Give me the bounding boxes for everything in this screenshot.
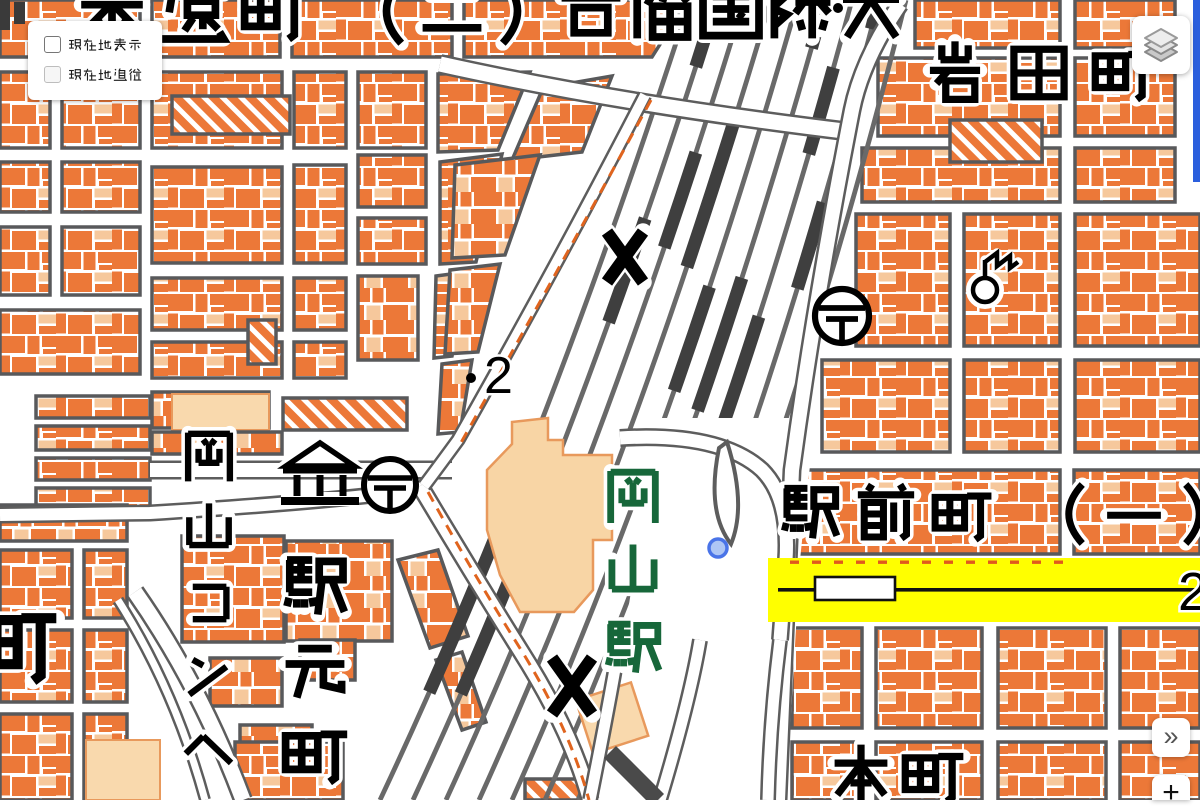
svg-text:2: 2: [484, 347, 513, 405]
svg-text:2: 2: [1178, 562, 1200, 622]
